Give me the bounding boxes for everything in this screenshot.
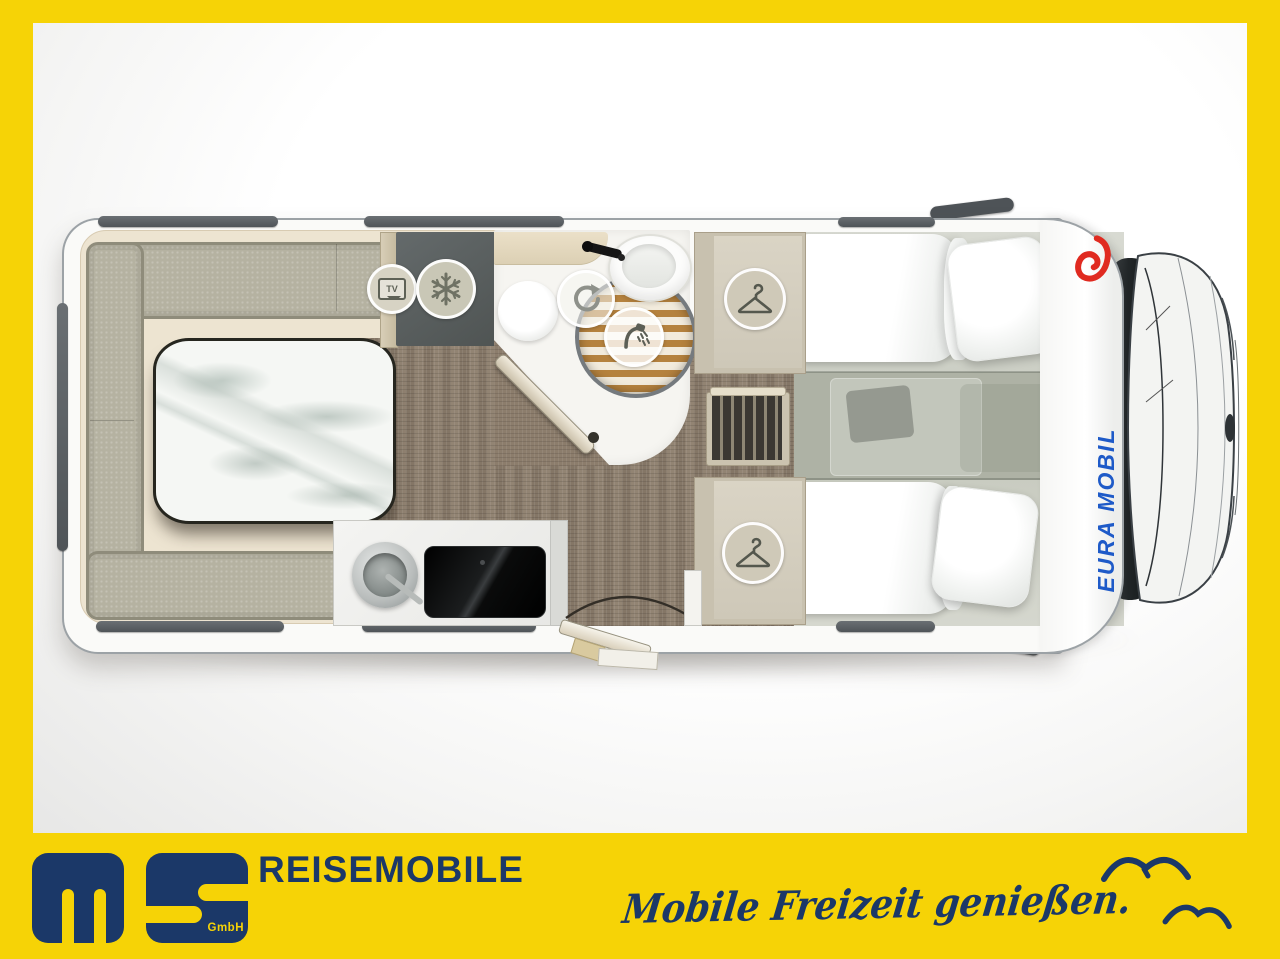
eura-mobil-lettering: EURA MOBIL	[1093, 415, 1117, 605]
ms-logo-s-notch	[198, 884, 248, 901]
garage-ghost-item	[845, 385, 914, 443]
bed-duvet-top	[798, 234, 958, 362]
bed-steps-slats	[712, 396, 782, 460]
hanger-icon	[722, 522, 784, 584]
snowflake-icon	[416, 259, 476, 319]
ms-logo-m-slot	[94, 889, 106, 943]
entry-door-swing-arc	[560, 576, 700, 622]
gmbh-label: GmbH	[200, 922, 244, 934]
basin-faucet-knob	[582, 241, 593, 252]
seagull-icon	[1100, 851, 1192, 885]
listing-image: EURA MOBIL TV	[0, 0, 1280, 959]
washbasin-bowl	[622, 244, 676, 288]
basin-faucet-tip	[618, 254, 625, 261]
lounge-bench-bottom	[86, 551, 344, 620]
window-bar	[98, 216, 278, 227]
marble-dinette-table	[153, 338, 396, 524]
cooktop-knob	[480, 560, 485, 565]
cooktop	[424, 546, 546, 618]
bed-duvet-bottom	[796, 482, 954, 614]
ms-logo-m-slot	[62, 889, 74, 943]
window-bar	[364, 216, 564, 227]
reisemobile-wordmark: REISEMOBILE	[258, 849, 524, 891]
window-bar-rear	[57, 303, 68, 551]
tv-icon: TV	[367, 264, 417, 314]
window-bar	[838, 217, 935, 227]
rotate-icon	[557, 270, 615, 328]
cab-hood-drawing	[1100, 220, 1260, 650]
ms-logo-s-notch	[146, 906, 202, 923]
ms-logo-m	[32, 853, 124, 943]
window-bar	[836, 621, 935, 632]
shower-icon	[604, 307, 664, 367]
bed-pillow-bottom	[929, 484, 1040, 609]
swivel-toilet	[498, 281, 558, 341]
cushion-seam	[336, 244, 337, 311]
bathroom-door-handle	[588, 432, 599, 443]
entry-door-frame	[684, 570, 702, 626]
window-bar	[96, 621, 284, 632]
hanger-icon	[724, 268, 786, 330]
bed-steps-edge	[710, 387, 786, 396]
cushion-seam	[90, 420, 134, 421]
tv-badge: TV	[378, 278, 406, 300]
